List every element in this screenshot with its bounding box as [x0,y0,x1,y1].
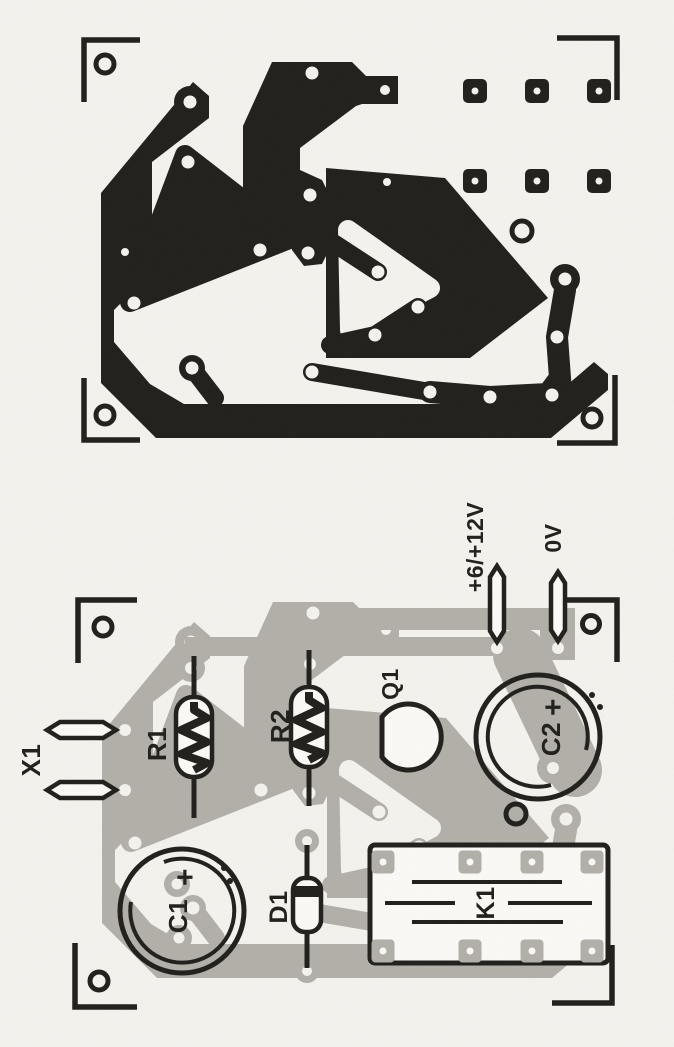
scan-grain-overlay [0,0,674,1047]
pcb-diagram-canvas: X1 R1 R2 Q1 C1 + C2 + D1 K1 +6/+12V 0V [0,0,674,1047]
pcb-layout-figure: X1 R1 R2 Q1 C1 + C2 + D1 K1 +6/+12V 0V [0,0,674,1047]
